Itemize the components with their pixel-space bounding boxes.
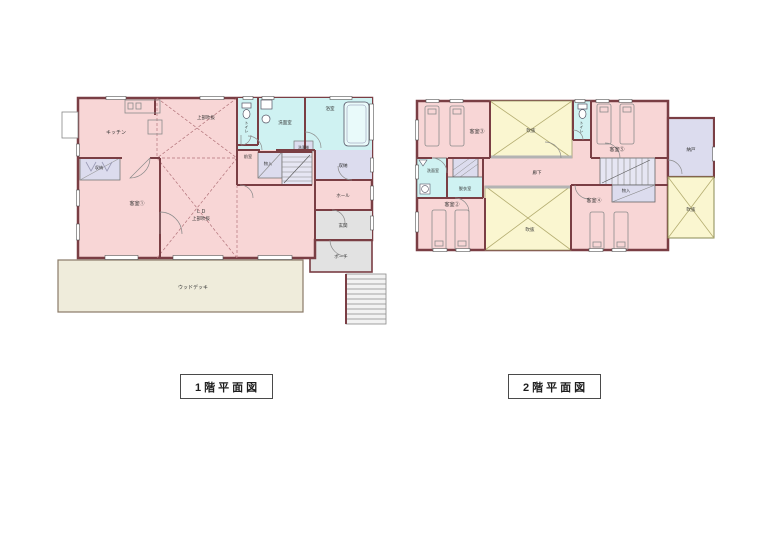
back-door-box (62, 112, 78, 138)
hatched-closet-2f (453, 158, 478, 177)
corridor-label: 廊下 (533, 169, 542, 176)
washroom-2f (417, 158, 447, 198)
washroom-label-2f: 洗面室 (427, 167, 439, 173)
storage-left-label: 収納 (95, 164, 103, 171)
void-bottom-label: 吹抜 (526, 226, 535, 233)
floor2-plan: 客室③ 吹抜 トイレ 客室⑤ 納戸 廊下 洗面室 脱衣室 客室② 客室④ 物入 … (410, 90, 715, 265)
storage-right-label: 収納 (339, 162, 348, 169)
guest-room-2-label: 客室② (444, 201, 459, 208)
exterior-stairs (346, 274, 386, 324)
closet-label-1f: 物入 (264, 160, 273, 167)
floor1-title: 1階平面図 (180, 374, 273, 399)
washroom-label-1f: 洗面室 (278, 119, 292, 126)
guest-room-4-label: 客室④ (586, 197, 601, 204)
guest-room-5-label: 客室⑤ (609, 146, 624, 153)
closet-2f (612, 185, 655, 202)
anteroom-label: 前室 (244, 153, 252, 160)
stairs-1f (282, 152, 312, 185)
guest-room-3-label: 客室③ (469, 128, 484, 135)
toilet-label-1f: トイレ (245, 121, 250, 133)
guest-room-1-label: 客室① (129, 200, 144, 207)
void-bottom (485, 186, 571, 250)
bathtub-icon (344, 102, 369, 146)
toilet-label-2f: トイレ (580, 121, 585, 133)
floor-plan-page: キッチン 上部吹抜 トイレ 洗面室 浴室 収納 客室① 前室 物入 洗濯機 収納… (0, 0, 760, 537)
ld-void-label: 上部吹抜 (192, 215, 210, 222)
void-right-label: 吹抜 (687, 206, 696, 213)
void-top-label: 吹抜 (527, 127, 536, 134)
closet-label-2f: 物入 (622, 187, 631, 194)
porch-label: ポーチ (334, 253, 348, 259)
floor2-title: 2階平面図 (508, 374, 601, 399)
dressing-room-label: 脱衣室 (459, 185, 472, 192)
hall-label: ホール (336, 193, 350, 198)
kitchen-label: キッチン (106, 130, 126, 136)
floor1-plan: キッチン 上部吹抜 トイレ 洗面室 浴室 収納 客室① 前室 物入 洗濯機 収納… (55, 85, 395, 330)
ld-label: ＬＤ (196, 209, 206, 215)
wood-deck-label: ウッドデッキ (178, 284, 208, 291)
washing-machine-label: 洗濯機 (298, 145, 309, 150)
bathroom-label: 浴室 (326, 105, 335, 112)
storage-room-label: 納戸 (687, 146, 696, 153)
entrance-label: 玄関 (339, 222, 348, 229)
void-above-label: 上部吹抜 (197, 114, 215, 121)
stairs-2f (600, 158, 655, 185)
